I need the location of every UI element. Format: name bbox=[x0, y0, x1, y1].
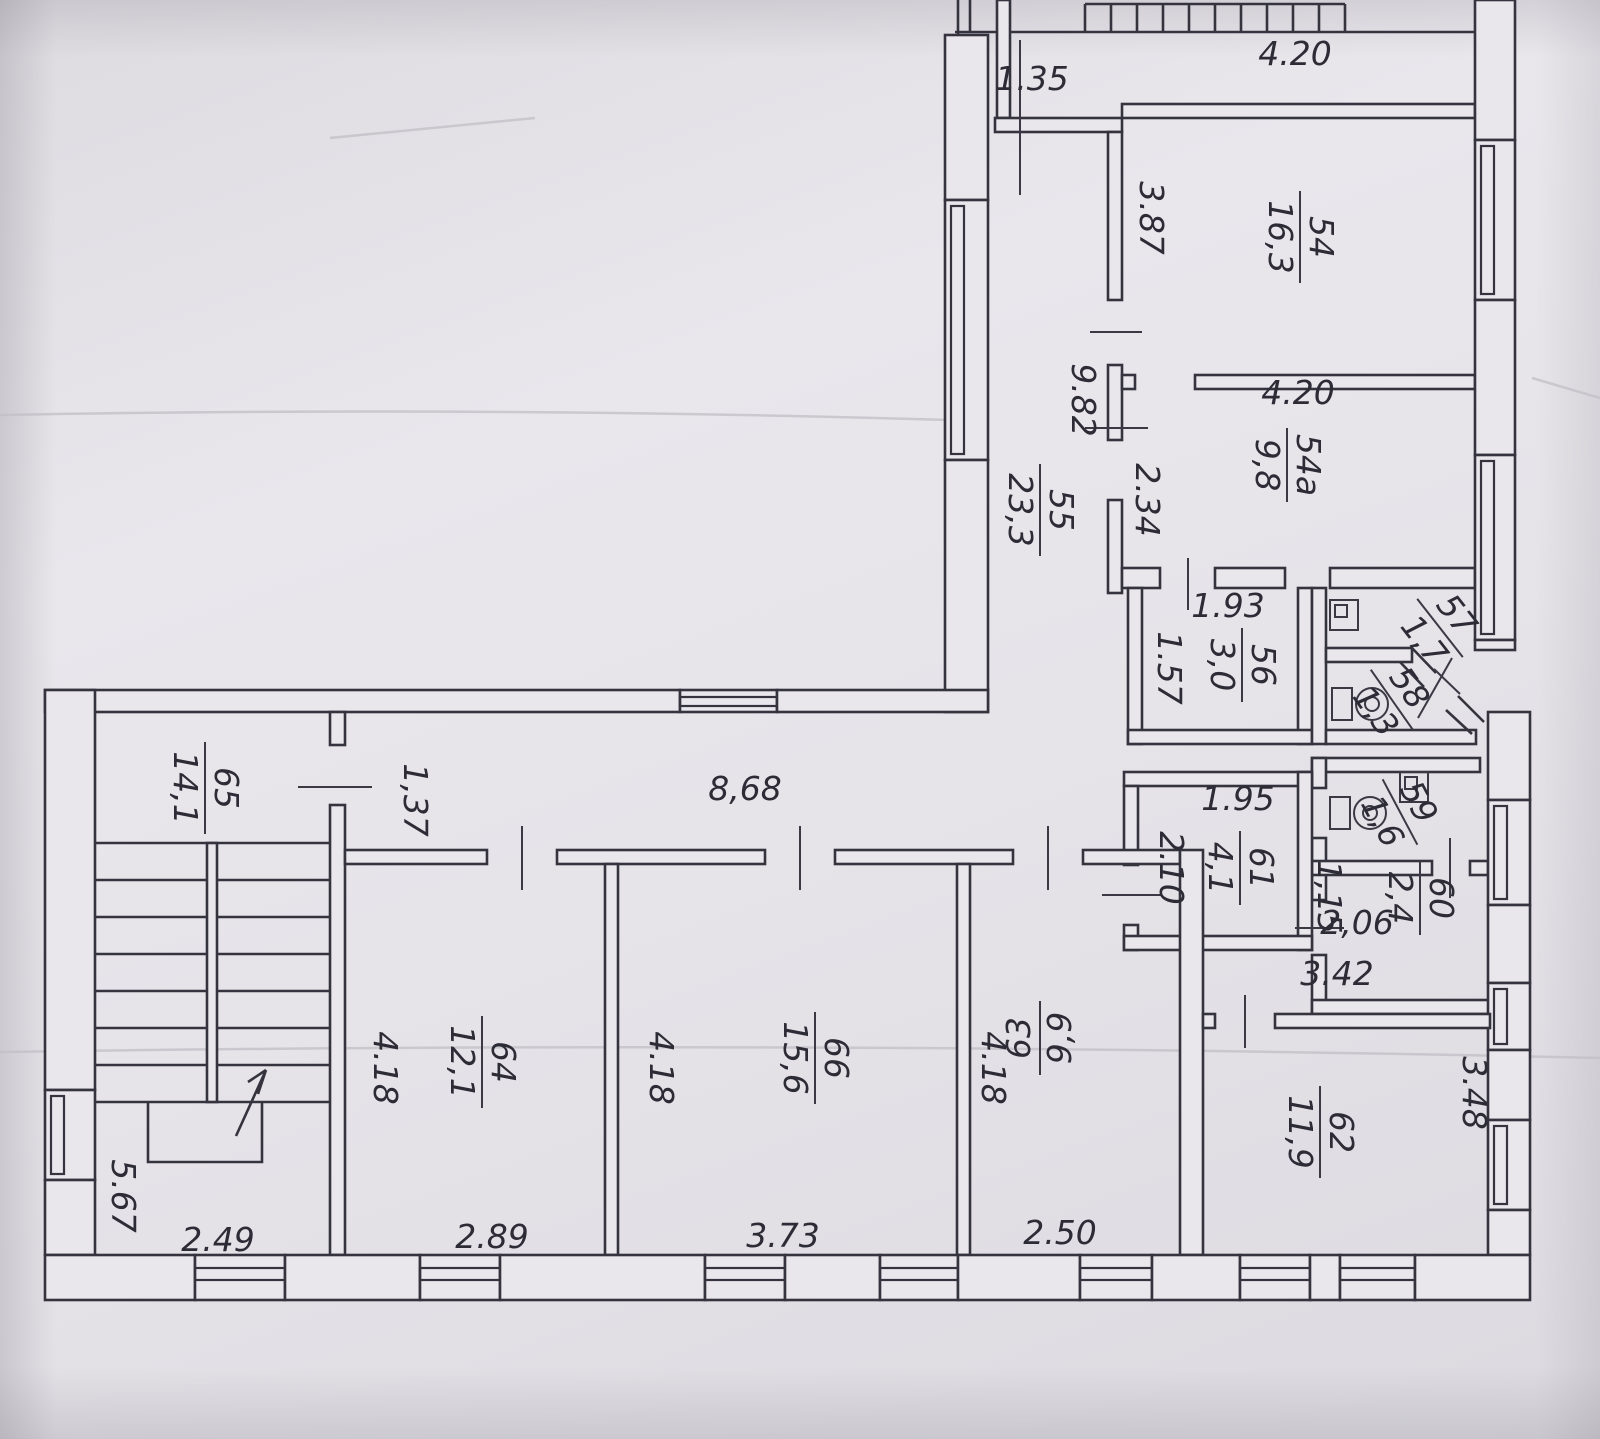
room-number: 62 bbox=[1322, 1111, 1361, 1153]
floor-plan-drawing: 5416,354a9,85523,3563,0571,7581,3591,660… bbox=[0, 0, 1600, 1439]
dimension-text-12: 3.42 bbox=[1300, 954, 1373, 993]
dimension-text-14: 8,68 bbox=[708, 769, 781, 808]
scanned-floor-plan-photo: 5416,354a9,85523,3563,0571,7581,3591,660… bbox=[0, 0, 1600, 1439]
room-area: 9,9 bbox=[1040, 1012, 1079, 1064]
dimension-text-8: 1.95 bbox=[1201, 779, 1274, 818]
dimension-text-16: 4.18 bbox=[366, 1031, 405, 1104]
room-label-54: 5416,3 bbox=[1261, 191, 1341, 283]
room-area: 23,3 bbox=[1001, 473, 1040, 546]
dimension-text-17: 2.89 bbox=[455, 1217, 528, 1256]
dimension-text-7: 1.57 bbox=[1150, 631, 1189, 704]
room-area: 11,9 bbox=[1281, 1095, 1320, 1168]
dimension-text-21: 2.50 bbox=[1023, 1213, 1096, 1252]
room-area: 4,1 bbox=[1201, 842, 1240, 894]
dimension-text-4: 4.20 bbox=[1261, 373, 1334, 412]
dimension-text-11: 2,06 bbox=[1320, 903, 1393, 942]
room-label-54a: 54a9,8 bbox=[1248, 428, 1328, 502]
room-area: 16,3 bbox=[1261, 200, 1300, 273]
dimension-text-20: 4.18 bbox=[974, 1031, 1013, 1104]
dimension-text-19: 3.73 bbox=[746, 1216, 819, 1255]
room-label-66: 6615,6 bbox=[776, 1012, 856, 1104]
room-number: 54a bbox=[1289, 434, 1328, 496]
dimension-text-6: 1.93 bbox=[1191, 586, 1264, 625]
room-area: 14,1 bbox=[166, 751, 205, 824]
dimension-text-23: 2.49 bbox=[181, 1220, 254, 1259]
room-label-62: 6211,9 bbox=[1281, 1086, 1361, 1178]
room-label-64: 6412,1 bbox=[443, 1016, 523, 1108]
staircase bbox=[95, 843, 330, 1162]
dimension-text-0: 4.20 bbox=[1258, 34, 1331, 73]
room-area: 3,0 bbox=[1203, 639, 1242, 691]
room-area: 12,1 bbox=[443, 1025, 482, 1098]
dimension-text-22: 5.67 bbox=[104, 1159, 143, 1232]
room-label-56: 563,0 bbox=[1203, 628, 1283, 702]
dimension-text-2: 3.87 bbox=[1132, 181, 1171, 254]
dimension-text-5: 2.34 bbox=[1128, 463, 1167, 536]
dimension-text-3: 9.82 bbox=[1064, 363, 1103, 436]
room-area: 15,6 bbox=[776, 1021, 815, 1094]
labels-layer: 5416,354a9,85523,3563,0571,7581,3591,660… bbox=[104, 34, 1495, 1259]
dimension-text-13: 3.48 bbox=[1455, 1056, 1494, 1129]
dimension-text-9: 2.10 bbox=[1152, 831, 1191, 904]
room-number: 65 bbox=[207, 767, 246, 809]
room-number: 66 bbox=[817, 1037, 856, 1079]
room-number: 55 bbox=[1042, 489, 1081, 531]
room-number: 64 bbox=[484, 1041, 523, 1083]
room-area: 9,8 bbox=[1248, 439, 1287, 491]
door-and-witness-ticks bbox=[298, 40, 1450, 1048]
room-label-55: 5523,3 bbox=[1001, 464, 1081, 556]
room-number: 54 bbox=[1302, 216, 1341, 258]
dimension-text-1: 1.35 bbox=[995, 59, 1068, 98]
room-number: 56 bbox=[1244, 644, 1283, 686]
sink-icon-room57 bbox=[1330, 600, 1358, 630]
room-label-61: 614,1 bbox=[1201, 831, 1281, 905]
room-number: 61 bbox=[1242, 847, 1281, 889]
room-label-65: 6514,1 bbox=[166, 742, 246, 834]
dimension-text-15: 1,37 bbox=[396, 763, 435, 836]
room-number: 60 bbox=[1422, 877, 1461, 919]
dimension-text-18: 4.18 bbox=[642, 1031, 681, 1104]
